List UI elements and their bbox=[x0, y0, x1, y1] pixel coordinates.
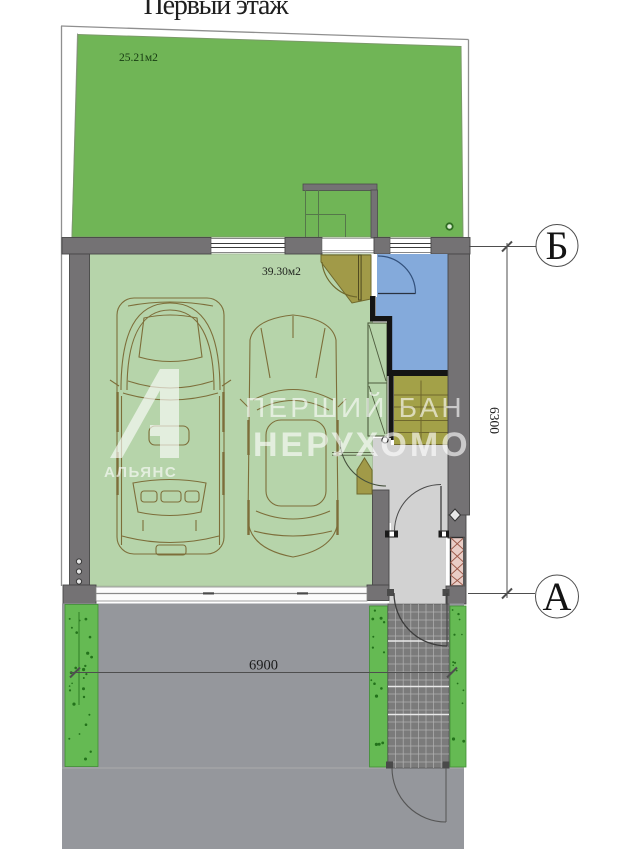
svg-text:6300: 6300 bbox=[487, 407, 502, 434]
svg-text:Первый этаж: Первый этаж bbox=[144, 0, 290, 21]
svg-text:39.30м2: 39.30м2 bbox=[262, 266, 301, 278]
svg-text:Б: Б bbox=[546, 223, 569, 268]
svg-text:6900: 6900 bbox=[249, 658, 278, 674]
svg-text:А: А bbox=[543, 574, 572, 619]
svg-text:АЛЬЯНС: АЛЬЯНС bbox=[104, 464, 177, 481]
svg-text:ПЕРШИЙ БАН: ПЕРШИЙ БАН bbox=[245, 392, 465, 423]
svg-text:25.21м2: 25.21м2 bbox=[119, 52, 158, 64]
svg-text:НЕРУХОМО: НЕРУХОМО bbox=[253, 426, 471, 464]
